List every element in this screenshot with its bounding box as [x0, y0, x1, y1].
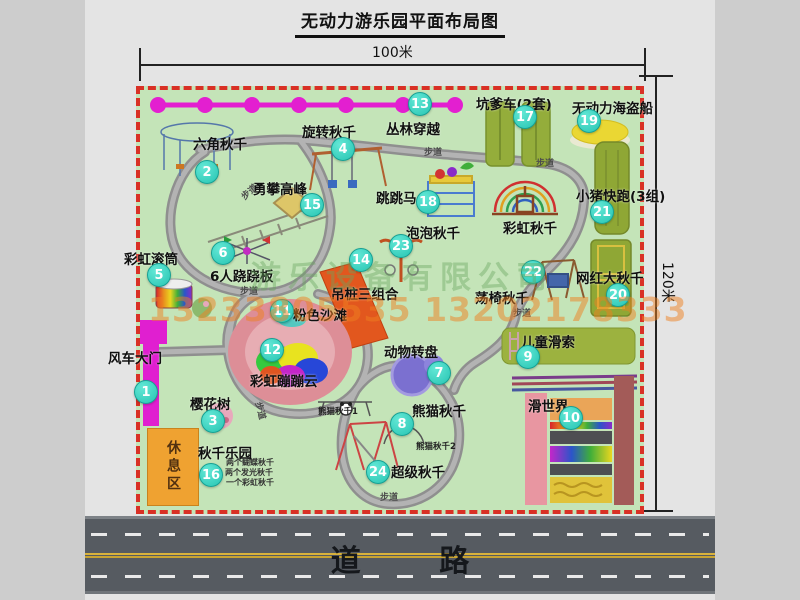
dim-line-horizontal: [140, 64, 645, 66]
label-bubble-swing: 泡泡秋千: [406, 222, 460, 242]
badge-cherry-tree: 3: [201, 409, 225, 433]
road-label: 道 路: [85, 536, 715, 580]
rest-area: 休息区: [147, 428, 199, 506]
screenshot-root: 无动力游乐园平面布局图 100米 120米: [0, 0, 800, 600]
page-title: 无动力游乐园平面布局图: [0, 7, 800, 38]
label-rainbow-swing: 彩虹秋千: [503, 217, 557, 237]
label-jungle-crossing: 丛林穿越: [386, 118, 440, 138]
label-panda-swing: 熊猫秋千: [412, 400, 466, 420]
badge-windmill-gate: 1: [134, 380, 158, 404]
rest-area-label: 休息区: [163, 440, 183, 494]
footpath-label: 步道: [536, 156, 554, 169]
dim-tick-bottom: [639, 510, 673, 512]
badge-kids-zipline: 9: [516, 345, 540, 369]
badge-six-seesaw: 6: [211, 241, 235, 265]
footpath-label: 步道: [380, 490, 398, 503]
badge-pirate-ship: 19: [577, 109, 601, 133]
dim-tick-left: [139, 48, 141, 81]
label-climbing-peak: 勇攀高峰: [253, 178, 307, 198]
badge-slide-world: 10: [559, 406, 583, 430]
label-panda-swing-1: 熊猫秋千1: [318, 405, 358, 417]
label-rainbow-bounce-cloud: 彩虹蹦蹦云: [250, 370, 318, 390]
badge-rainbow-roller: 5: [147, 263, 171, 287]
badge-piggy-run: 21: [590, 200, 614, 224]
label-super-swing: 超级秋千: [391, 461, 445, 481]
badge-animal-carousel: 7: [427, 361, 451, 385]
badge-climbing-peak: 15: [300, 193, 324, 217]
badge-rainbow-bounce-cloud: 12: [260, 338, 284, 362]
badge-swing-park: 16: [199, 463, 223, 487]
swing-park-note-1: 两个蝴蝶秋千: [226, 458, 274, 468]
rainbow-swing-structure: [492, 182, 558, 214]
swing-park-note-3: 一个彩虹秋千: [226, 478, 274, 488]
badge-hexagon-swing: 2: [195, 160, 219, 184]
label-jumping-horse: 跳跳马: [376, 187, 417, 207]
label-panda-swing-2: 熊猫秋千2: [416, 440, 456, 452]
footpath-label: 步道: [424, 145, 442, 158]
label-animal-carousel: 动物转盘: [384, 341, 438, 361]
watermark-phone: 13233805535 13202178333: [148, 290, 688, 329]
windmill-gate-structure: [140, 320, 167, 426]
label-hexagon-swing: 六角秋千: [193, 133, 247, 153]
badge-super-swing: 24: [366, 460, 390, 484]
badge-panda-swing: 8: [390, 412, 414, 436]
badge-rotating-swing: 4: [331, 137, 355, 161]
dim-tick-top: [639, 75, 673, 77]
page-title-text: 无动力游乐园平面布局图: [295, 7, 505, 38]
badge-jungle-crossing: 13: [408, 92, 432, 116]
label-piggy-run: 小猪快跑(3组): [576, 185, 665, 205]
road: 道 路: [85, 516, 715, 594]
label-windmill-gate: 风车大门: [108, 347, 162, 367]
badge-pit-cart: 17: [513, 105, 537, 129]
label-viral-big-swing: 网红大秋千: [576, 267, 644, 287]
dim-width-label: 100米: [372, 42, 413, 62]
badge-jumping-horse: 18: [416, 190, 440, 214]
swing-park-note-2: 两个发光秋千: [225, 468, 273, 478]
